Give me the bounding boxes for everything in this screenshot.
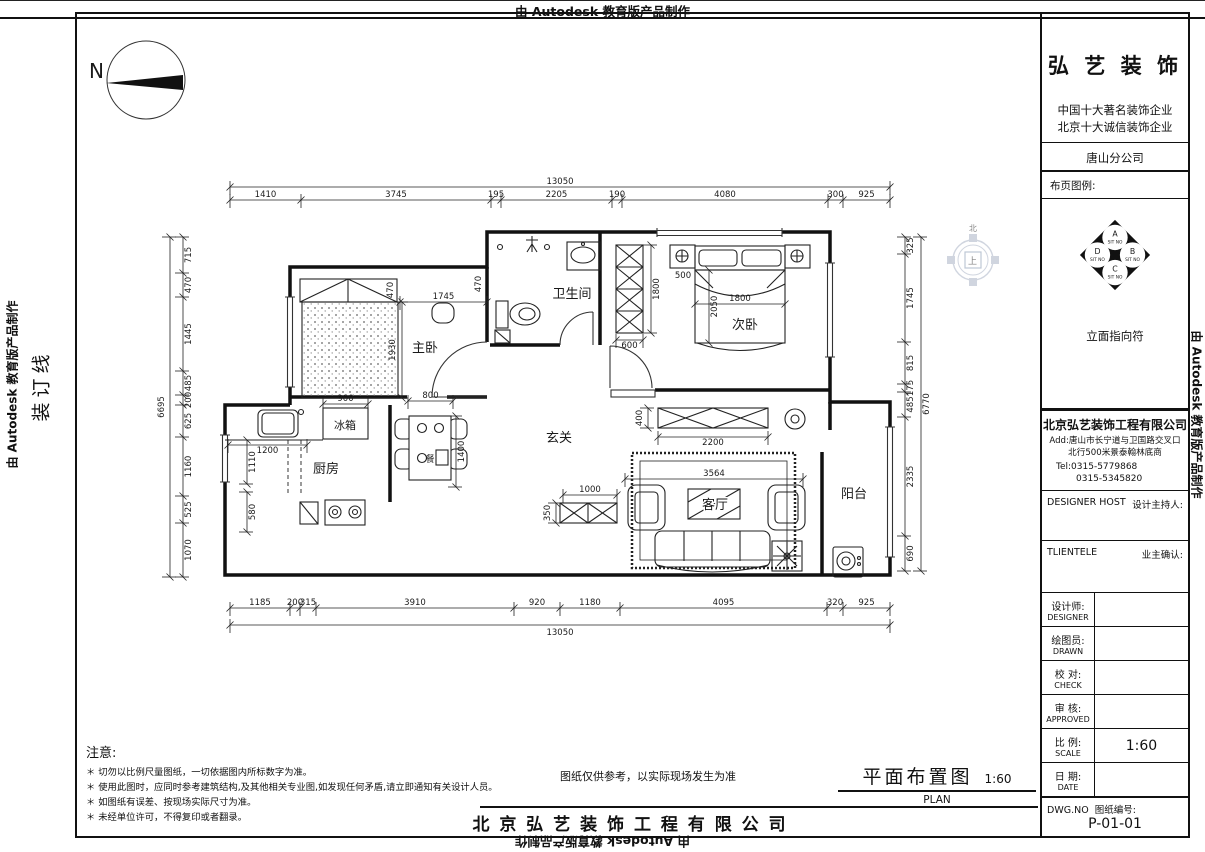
designer-host-cn: 设计主持人: [1132, 497, 1183, 511]
entry-door [610, 346, 652, 388]
direction-symbol: 上 北 [947, 224, 999, 286]
svg-text:175: 175 [906, 380, 916, 396]
svg-text:6695: 6695 [157, 396, 167, 418]
slogan-1: 中国十大著名装饰企业 [1042, 102, 1188, 118]
row-date-value [1095, 763, 1188, 797]
doors [432, 312, 655, 397]
label-living: 客厅 [702, 497, 728, 513]
svg-text:1445: 1445 [184, 323, 194, 345]
svg-text:2335: 2335 [906, 466, 916, 488]
row-designer-en: DESIGNER [1042, 613, 1094, 622]
svg-text:315: 315 [300, 598, 316, 608]
svg-text:815: 815 [906, 355, 916, 371]
svg-text:200: 200 [184, 392, 194, 408]
elevation-symbol: A B C D SIT NO SIT NO SIT NO SIT NO [1076, 216, 1154, 294]
note-item: ＊ 切勿以比例尺量图纸，一切依据图内所标数字为准。 [86, 765, 516, 780]
label-foyer: 玄关 [546, 431, 572, 446]
row-designer-cn: 设计师: [1042, 598, 1094, 613]
elev-sit-c: SIT NO [1108, 274, 1123, 280]
row-date: 日 期:DATE [1042, 762, 1188, 797]
svg-text:3910: 3910 [404, 598, 426, 608]
svg-text:1800: 1800 [652, 278, 662, 300]
svg-text:625: 625 [184, 413, 194, 429]
floor-plan: N 上 北 [75, 12, 1040, 838]
svg-text:925: 925 [858, 598, 874, 608]
autodesk-banner-right: 由 Autodesk 教育版产品制作 [1189, 305, 1205, 525]
svg-text:3745: 3745 [385, 190, 407, 200]
row-approved-en: APPROVED [1042, 715, 1094, 724]
svg-text:13050: 13050 [546, 177, 573, 187]
shoe-cabinet [560, 503, 617, 523]
autodesk-banner-bottom: 由 Autodesk 教育版产品制作 [0, 836, 1205, 852]
company-address-2: 北行500米景泰翰林底商 [1042, 446, 1188, 458]
row-drawn-cn: 绘图员: [1042, 632, 1094, 647]
master-bedroom [300, 279, 454, 398]
label-master: 主卧 [412, 341, 438, 356]
living-room [628, 408, 805, 572]
fan [785, 409, 805, 429]
svg-text:4095: 4095 [713, 598, 735, 608]
svg-text:925: 925 [858, 190, 874, 200]
row-scale-value: 1:60 [1095, 729, 1188, 763]
row-date-en: DATE [1042, 783, 1094, 792]
slogan-2: 北京十大诚信装饰企业 [1042, 119, 1188, 135]
company-address-1: Add:唐山市长宁道与卫国路交叉口 [1042, 434, 1188, 446]
svg-text:1410: 1410 [255, 190, 277, 200]
svg-text:13050: 13050 [546, 628, 573, 638]
svg-text:195: 195 [488, 190, 504, 200]
svg-text:1110: 1110 [248, 451, 258, 473]
master-stool [432, 303, 454, 323]
branch-name: 唐山分公司 [1042, 150, 1188, 166]
shower-icon [526, 236, 538, 252]
dwg-label-cn: 图纸编号: [1095, 805, 1136, 816]
svg-text:800: 800 [422, 391, 438, 401]
company-tel-2: 0315-5345820 [1076, 474, 1142, 484]
svg-text:3564: 3564 [703, 469, 725, 479]
row-scale: 比 例:SCALE 1:60 [1042, 728, 1188, 763]
svg-text:900: 900 [337, 394, 353, 404]
elev-a: A [1112, 229, 1118, 238]
row-designer: 设计师:DESIGNER [1042, 592, 1188, 627]
dwg-number: P-01-01 [1042, 816, 1188, 832]
svg-text:715: 715 [184, 247, 194, 263]
legend-label: 布页图例: [1050, 178, 1096, 193]
svg-text:6770: 6770 [922, 393, 932, 415]
elev-sit-d: SIT NO [1090, 257, 1105, 263]
svg-text:580: 580 [248, 504, 258, 520]
designer-host-en: DESIGNER HOST [1047, 497, 1126, 511]
label-balcony: 阳台 [841, 487, 867, 502]
bathroom-door [560, 312, 593, 345]
row-check-cn: 校 对: [1042, 666, 1094, 681]
row-check-value [1095, 661, 1188, 695]
svg-text:190: 190 [609, 190, 625, 200]
elev-c: C [1112, 265, 1118, 274]
svg-text:1160: 1160 [184, 456, 194, 478]
svg-text:1800: 1800 [729, 294, 751, 304]
svg-text:1200: 1200 [257, 446, 279, 456]
north-arrow: N [89, 41, 185, 119]
svg-text:1185: 1185 [249, 598, 271, 608]
north-label: N [89, 59, 104, 83]
svg-text:600: 600 [621, 341, 637, 351]
svg-text:2050: 2050 [710, 296, 720, 318]
elevation-symbol-label: 立面指向符 [1042, 328, 1188, 344]
svg-text:1745: 1745 [433, 292, 455, 302]
bath-sink [571, 247, 595, 263]
row-scale-en: SCALE [1042, 749, 1094, 758]
svg-text:350: 350 [543, 505, 553, 521]
stove [325, 500, 365, 525]
dim-470b: 470 [474, 276, 484, 292]
svg-text:485: 485 [184, 375, 194, 391]
clientele-row: TLIENTELE 业主确认: [1047, 547, 1183, 561]
toilet-tank [496, 301, 508, 328]
row-check-en: CHECK [1042, 681, 1094, 690]
svg-text:300: 300 [827, 190, 843, 200]
row-drawn: 绘图员:DRAWN [1042, 626, 1188, 661]
footer-company: 北 京 弘 艺 装 饰 工 程 有 限 公 司 [280, 810, 980, 835]
tv-cabinet [658, 408, 768, 428]
row-date-cn: 日 期: [1042, 768, 1094, 783]
company-tel-1: Tel:0315-5779868 [1056, 462, 1137, 472]
svg-text:1930: 1930 [388, 339, 398, 361]
row-designer-value [1095, 593, 1188, 627]
direction-north-label: 北 [969, 224, 977, 233]
drawing-title: 平面布置图 [863, 762, 973, 789]
master-bed [302, 302, 398, 398]
autodesk-banner-left: 由 Autodesk 教育版产品制作 [4, 275, 21, 495]
row-drawn-value [1095, 627, 1188, 661]
row-scale-cn: 比 例: [1042, 734, 1094, 749]
clientele-en: TLIENTELE [1047, 547, 1097, 561]
svg-text:1400: 1400 [457, 441, 467, 463]
footer-separator [480, 806, 1038, 808]
hall-wardrobe [616, 245, 643, 333]
elev-d: D [1094, 247, 1100, 256]
svg-text:470: 470 [184, 277, 194, 293]
cad-floorplan-sheet: { "banner": { "autodesk": "由 Autodesk 教育… [0, 0, 1205, 852]
note-item: ＊ 使用此图时，应同时参考建筑结构,及其他相关专业图,如发现任何矛盾,请立即通知… [86, 780, 516, 795]
svg-text:400: 400 [635, 410, 645, 426]
svg-text:525: 525 [184, 501, 194, 517]
binding-line-label: 装订线 [27, 346, 54, 426]
svg-text:485: 485 [906, 396, 916, 412]
dim-500: 500 [675, 271, 691, 281]
label-fridge: 冰箱 [334, 418, 356, 432]
svg-text:1180: 1180 [579, 598, 601, 608]
dining-table [409, 416, 451, 480]
kitchen-sink [258, 410, 298, 437]
clientele-cn: 业主确认: [1142, 547, 1183, 561]
svg-text:320: 320 [827, 598, 843, 608]
label-dining: 餐 [425, 453, 434, 465]
dwg-label-en: DWG.NO [1047, 805, 1089, 816]
entry-threshold [611, 390, 655, 397]
notes-title: 注意: [86, 742, 516, 761]
svg-text:2200: 2200 [702, 438, 724, 448]
svg-text:690: 690 [906, 545, 916, 561]
master-door [432, 342, 487, 397]
drawing-title-group: 平面布置图 1:60 [838, 762, 1036, 789]
elev-sit-b: SIT NO [1125, 257, 1140, 263]
label-second: 次卧 [732, 317, 758, 333]
svg-text:1745: 1745 [906, 287, 916, 309]
svg-text:4080: 4080 [714, 190, 736, 200]
note-item: ＊ 如图纸有误差、按现场实际尺寸为准。 [86, 795, 516, 810]
row-check: 校 对:CHECK [1042, 660, 1188, 695]
company-name: 北京弘艺装饰工程有限公司 [1042, 416, 1188, 433]
svg-text:2205: 2205 [546, 190, 568, 200]
title-block: 弘 艺 装 饰 中国十大著名装饰企业 北京十大诚信装饰企业 唐山分公司 布页图例… [1042, 12, 1188, 838]
row-approved: 审 核:APPROVED [1042, 694, 1188, 729]
svg-text:1000: 1000 [579, 485, 601, 495]
designer-host-row: DESIGNER HOST 设计主持人: [1047, 497, 1183, 511]
title-underline [838, 790, 1036, 792]
label-kitchen: 厨房 [313, 461, 339, 477]
row-drawn-en: DRAWN [1042, 647, 1094, 656]
direction-center-label: 上 [968, 256, 977, 267]
elev-sit-a: SIT NO [1108, 239, 1123, 245]
svg-text:920: 920 [529, 598, 545, 608]
elev-b: B [1130, 247, 1135, 256]
balcony [833, 547, 863, 577]
svg-text:1070: 1070 [184, 539, 194, 561]
dwg-no-label: DWG.NO 图纸编号: [1047, 802, 1136, 816]
drawing-title-en: PLAN [838, 794, 1036, 806]
company-logo: 弘 艺 装 饰 [1042, 50, 1188, 80]
row-approved-value [1095, 695, 1188, 729]
label-bathroom: 卫生间 [552, 287, 591, 302]
row-approved-cn: 审 核: [1042, 700, 1094, 715]
disclaimer: 图纸仅供参考，以实际现场发生为准 [560, 768, 838, 784]
svg-text:325: 325 [906, 237, 916, 253]
drawing-scale: 1:60 [985, 772, 1012, 786]
dim-470a: 470 [386, 282, 396, 298]
